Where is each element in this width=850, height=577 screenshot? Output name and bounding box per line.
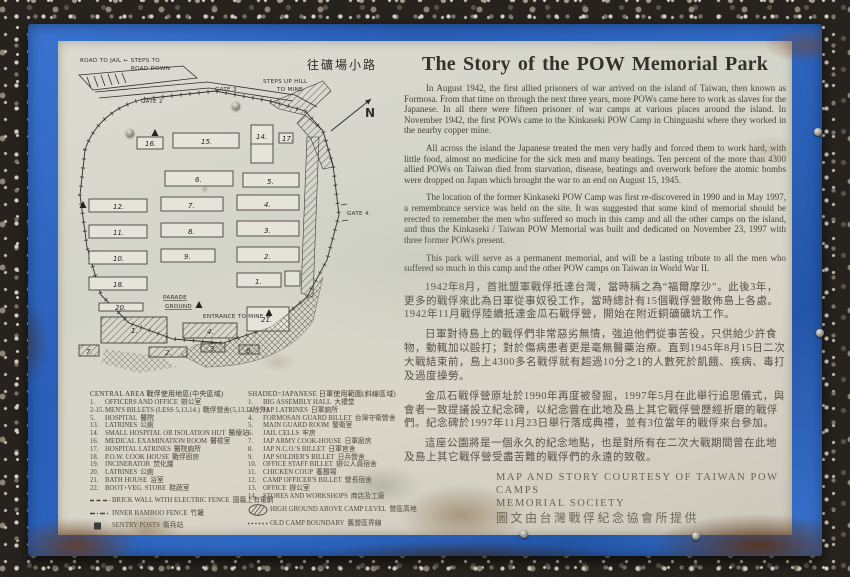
story-paragraph-zh: 1942年8月，首批盟軍戰俘抵達台灣，當時稱之為“福爾摩沙”。此後3年，更多的戰… <box>404 281 786 323</box>
legend-central-area: CENTRAL AREA 戰俘使用地區(中央區域) 1.OFFICERS AND… <box>90 390 240 530</box>
legend-item: 1.BIG ASSEMBLY HALL大禮堂 <box>248 399 398 407</box>
svg-text:18.: 18. <box>113 281 124 289</box>
svg-text:10.: 10. <box>113 255 124 263</box>
svg-text:14.: 14. <box>256 133 267 141</box>
credit-en: MAP AND STORY COURTESY OF TAIWAN POW CAM… <box>496 471 786 497</box>
svg-text:12.: 12. <box>113 203 124 211</box>
legend-item: 6.JAIL CELLS牢房 <box>248 430 398 438</box>
legend-item: 22.BOOT+VEG. STORE鞋蔬室 <box>90 485 240 493</box>
screw <box>520 530 528 538</box>
gate2-label: GATE 2 <box>141 99 163 105</box>
story-column: The Story of the POW Memorial Park In Au… <box>404 53 786 526</box>
story-paragraph-en: In August 1942, the first allied prisone… <box>404 83 786 136</box>
dotted-line-icon <box>248 521 270 526</box>
legend-item: 4.FORMOSAN GUARD BILLET台灣守衛營舍 <box>248 415 398 423</box>
screw <box>814 128 822 136</box>
svg-text:4.: 4. <box>264 201 271 209</box>
legend-symbol-item: OLD CAMP BOUNDARY舊營區界線 <box>248 519 398 528</box>
legend-symbol-item: BRICK WALL WITH ELECTRIC FENCE圍牆上有電網 <box>90 496 240 505</box>
svg-text:15.: 15. <box>201 138 212 146</box>
screw <box>232 102 240 110</box>
legend-symbol-item: SENTRY POSTS衛兵站 <box>90 521 240 530</box>
high-ground-icon <box>248 504 270 516</box>
credit-en: MEMORIAL SOCIETY <box>496 497 786 510</box>
legend-header: SHADED=JAPANESE 日軍使用範圍(斜線區域) <box>248 390 398 399</box>
sentry-post-icon <box>90 522 112 530</box>
svg-text:6.: 6. <box>195 176 202 184</box>
sign-panel: ROAD TO JAIL ← STEPS TO ROAD DOWN GATE 2… <box>58 41 792 535</box>
screw <box>692 532 700 540</box>
screw <box>816 329 824 337</box>
svg-text:17.: 17. <box>282 135 293 143</box>
legend-shaded-area: SHADED=JAPANESE 日軍使用範圍(斜線區域) 1.BIG ASSEM… <box>248 390 398 530</box>
compass-north: N <box>331 99 375 131</box>
credit-line: MAP AND STORY COURTESY OF TAIWAN POW CAM… <box>404 471 786 526</box>
svg-text:5.: 5. <box>267 178 274 186</box>
legend-item: 19.INCINERATOR焚化爐 <box>90 461 240 469</box>
svg-text:1.: 1. <box>131 327 138 335</box>
entrance-label: ENTRANCE TO MINE → <box>203 314 271 320</box>
screw <box>126 129 134 137</box>
parade-ground-label: PARADE <box>163 295 187 301</box>
sign-title: The Story of the POW Memorial Park <box>404 53 786 76</box>
svg-text:4.: 4. <box>207 328 214 336</box>
legend-item: 21.BATH HOUSE浴室 <box>90 477 240 485</box>
svg-text:7.: 7. <box>188 202 195 210</box>
legend-header-zh: 戰俘使用地區(中央區域) <box>146 390 223 398</box>
legend-symbol-item: HIGH GROUND ABOVE CAMP LEVEL營區高地 <box>248 504 398 516</box>
legend-header-zh: 日軍使用範圍(斜線區域) <box>319 390 396 398</box>
camp-map: ROAD TO JAIL ← STEPS TO ROAD DOWN GATE 2… <box>62 45 398 385</box>
legend-header: CENTRAL AREA 戰俘使用地區(中央區域) <box>90 390 240 399</box>
story-paragraph-zh: 日軍對待島上的戰俘們非常惡劣無情，強迫他們從事苦役，只供給少許食物，動輒加以毆打… <box>404 328 786 383</box>
dashed-line-icon <box>90 498 112 503</box>
legend-item: 1.OFFICERS AND OFFICE辦公室 <box>90 399 240 407</box>
legend-item: 13.OFFICE辦公室 <box>248 485 398 493</box>
svg-text:1.: 1. <box>255 278 262 286</box>
svg-text:2.: 2. <box>165 349 172 357</box>
parade-ground-label: GROUND <box>165 304 192 310</box>
svg-text:20.: 20. <box>115 304 126 312</box>
legend-header-en: SHADED=JAPANESE <box>248 390 317 398</box>
story-paragraph-zh: 金瓜石戰俘營原址於1990年再度被發掘，1997年5月在此舉行追思儀式，與會者一… <box>404 390 786 432</box>
map-note: ROAD TO JAIL ← STEPS TO <box>80 58 160 64</box>
legend-header-en: CENTRAL AREA <box>90 390 144 398</box>
gate4-label: GATE 4. <box>347 211 371 217</box>
legend-item: 8.JAP N.C.O.'S BILLET日軍官舍 <box>248 446 398 454</box>
svg-text:2.: 2. <box>264 253 271 261</box>
svg-text:8.: 8. <box>188 228 195 236</box>
legend-item: 5.HOSPITAL醫院 <box>90 415 240 423</box>
mine-path-label-zh: 往礦場小路 <box>307 57 377 72</box>
legend-item: 17.HOSPITAL LATRINES醫院廁所 <box>90 446 240 454</box>
legend-item: 13.LATRINES公廁 <box>90 422 240 430</box>
camp-map-drawing: ROAD TO JAIL ← STEPS TO ROAD DOWN GATE 2… <box>62 45 398 385</box>
legend-item: 7.JAP ARMY COOK-HOUSE日軍廚房 <box>248 438 398 446</box>
legend-item: 2.JAP LATRINES日軍廁所 <box>248 407 398 415</box>
legend-item: 14.STORES AND WORKSHOPS商店及工廠 <box>248 493 398 501</box>
svg-text:9.: 9. <box>184 253 191 261</box>
legend-item: 16.MEDICAL EXAMINATION ROOM醫檢室 <box>90 438 240 446</box>
legend-symbol-item: INNER BAMBOO FENCE竹籬 <box>90 509 240 518</box>
svg-text:16.: 16. <box>145 140 156 148</box>
dash-dot-line-icon <box>90 511 112 516</box>
credit-zh: 圖文由台灣戰俘紀念協會所提供 <box>496 511 786 526</box>
legend-item: 12.CAMP OFFICER'S BILLET營長宿舍 <box>248 477 398 485</box>
story-paragraph-zh: 這座公園將是一個永久的紀念地點，也是對所有在二次大戰期間曾在此地及島上其它戰俘營… <box>404 437 786 465</box>
photo-of-memorial-sign: ROAD TO JAIL ← STEPS TO ROAD DOWN GATE 2… <box>0 0 850 577</box>
legend-item: 2-15.MEN'S BILLETS (LESS 5,13,14.)戰俘營舍(5… <box>90 407 240 415</box>
story-paragraph-en: This park will serve as a permanent memo… <box>404 253 786 274</box>
legend-item: 10.OFFICE STAFF BILLET辦公人員宿舍 <box>248 461 398 469</box>
svg-text:N: N <box>365 106 375 120</box>
legend-item: 5.MAIN GUARD ROOM警衛室 <box>248 422 398 430</box>
svg-text:3.: 3. <box>264 227 271 235</box>
story-paragraph-en: The location of the former Kinkaseki POW… <box>404 192 786 245</box>
legend-item: 20.LATRINES公廁 <box>90 469 240 477</box>
blue-sign-frame: ROAD TO JAIL ← STEPS TO ROAD DOWN GATE 2… <box>28 24 822 556</box>
steps-label: STEPS UP HILL <box>263 79 308 85</box>
svg-text:7.: 7. <box>86 348 93 356</box>
story-paragraph-en: All across the island the Japanese treat… <box>404 143 786 185</box>
legend-item: 11.CHICKEN COUP養雞場 <box>248 469 398 477</box>
svg-text:11.: 11. <box>113 229 124 237</box>
legend-item: 14.SMALL HOSPITAL OR ISOLATION HUT醫療站 <box>90 430 240 438</box>
map-legend: CENTRAL AREA 戰俘使用地區(中央區域) 1.OFFICERS AND… <box>90 390 392 530</box>
map-note: ROAD DOWN <box>131 66 170 72</box>
